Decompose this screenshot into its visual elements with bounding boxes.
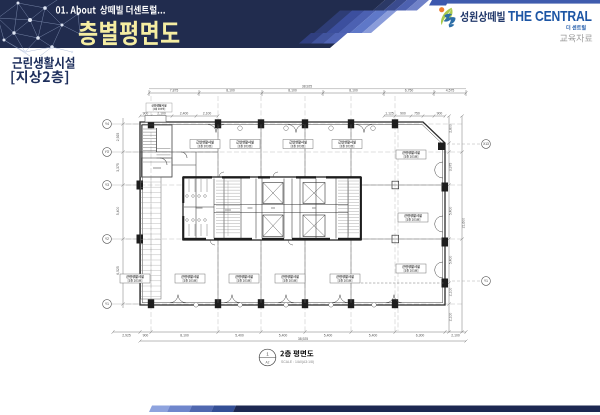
svg-text:6,300: 6,300 (416, 334, 425, 338)
svg-text:5,400: 5,400 (449, 256, 453, 265)
svg-text:Y3': Y3' (105, 150, 110, 154)
svg-text:5,400: 5,400 (324, 334, 333, 338)
svg-text:1: 1 (266, 352, 269, 357)
svg-text:21,600: 21,600 (462, 218, 466, 228)
svg-text:Y2: Y2 (105, 237, 109, 241)
svg-text:38,925: 38,925 (298, 337, 308, 341)
svg-text:3,375: 3,375 (449, 163, 453, 172)
svg-text:900: 900 (143, 334, 149, 338)
svg-text:5,400: 5,400 (235, 334, 244, 338)
svg-text:2,925: 2,925 (122, 334, 131, 338)
svg-text:900: 900 (437, 112, 443, 116)
svg-text:4,575: 4,575 (446, 89, 455, 93)
svg-text:8,100: 8,100 (349, 89, 358, 93)
svg-text:2,100: 2,100 (449, 288, 453, 297)
svg-text:5,400: 5,400 (449, 207, 453, 216)
svg-text:8,100: 8,100 (180, 334, 189, 338)
svg-text:5,400: 5,400 (279, 334, 288, 338)
svg-text:2,800: 2,800 (449, 124, 453, 133)
svg-text:2,100: 2,100 (203, 112, 212, 116)
svg-text:2,400: 2,400 (180, 112, 189, 116)
svg-text:2,925: 2,925 (116, 133, 120, 142)
svg-text:6,750: 6,750 (405, 89, 414, 93)
svg-text:2,100: 2,100 (451, 334, 460, 338)
svg-text:Y1: Y1 (105, 302, 109, 306)
svg-text:6,525: 6,525 (116, 266, 120, 275)
svg-text:3,375: 3,375 (116, 163, 120, 172)
svg-text:X13: X13 (483, 142, 489, 146)
svg-text:Y1: Y1 (484, 279, 488, 283)
svg-text:5,400: 5,400 (369, 334, 378, 338)
svg-text:8,100: 8,100 (288, 89, 297, 93)
svg-text:A2: A2 (266, 361, 270, 365)
svg-text:1,125: 1,125 (385, 112, 394, 116)
svg-text:8,100: 8,100 (226, 89, 235, 93)
svg-text:900: 900 (400, 112, 406, 116)
svg-text:38,925: 38,925 (302, 85, 312, 89)
svg-text:Y3: Y3 (105, 183, 109, 187)
svg-text:2,100: 2,100 (449, 313, 453, 322)
svg-text:Y4: Y4 (105, 122, 109, 126)
svg-text:5,400: 5,400 (116, 207, 120, 216)
svg-text:7,875: 7,875 (170, 89, 179, 93)
svg-text:THE CENTRAL: THE CENTRAL (508, 8, 592, 24)
svg-text:SCALE : 1/A0(A3:1/8): SCALE : 1/A0(A3:1/8) (281, 360, 314, 364)
svg-text:750: 750 (414, 112, 420, 116)
